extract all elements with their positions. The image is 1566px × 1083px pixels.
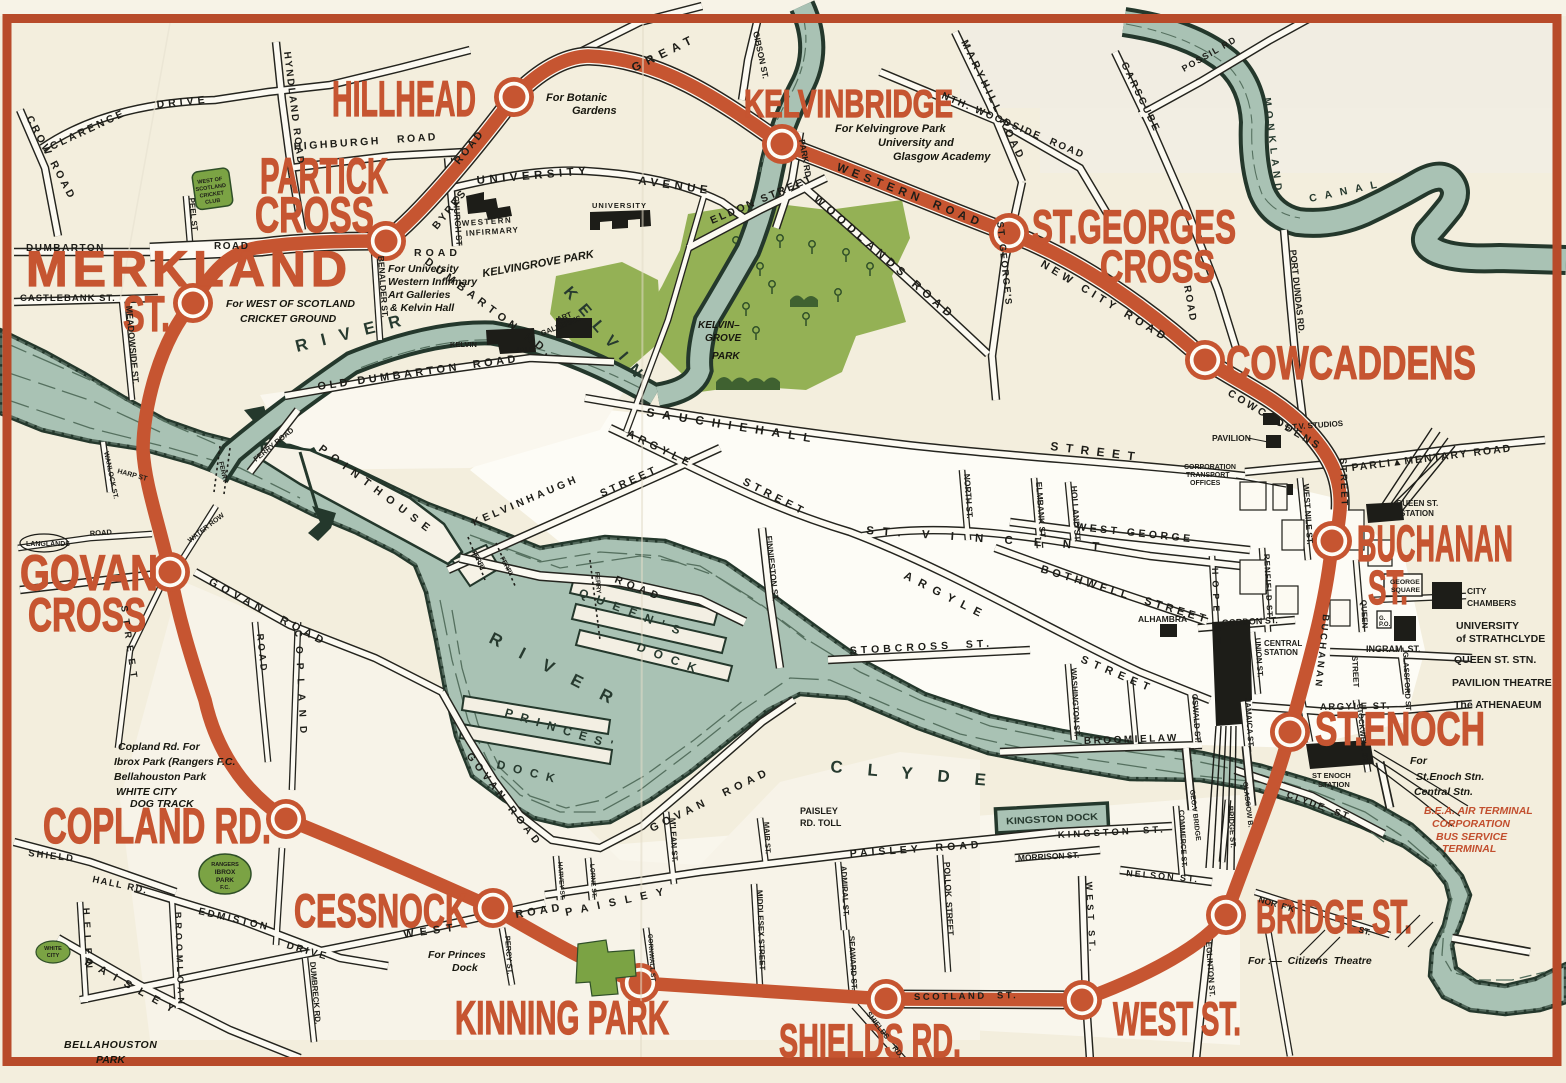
- svg-text:St.Enoch Stn.: St.Enoch Stn.: [1416, 771, 1484, 783]
- svg-text:University and: University and: [878, 137, 954, 149]
- svg-text:For University: For University: [388, 263, 460, 275]
- svg-text:Bellahouston Park: Bellahouston Park: [114, 771, 207, 783]
- svg-text:CROSS: CROSS: [255, 187, 374, 243]
- svg-text:ROAD: ROAD: [214, 241, 249, 252]
- svg-text:UNIVERSITY: UNIVERSITY: [592, 201, 647, 210]
- svg-text:WEST ST.: WEST ST.: [1113, 992, 1241, 1045]
- svg-text:Western Infirmary: Western Infirmary: [388, 276, 478, 288]
- svg-text:CASTLEBANK ST.: CASTLEBANK ST.: [20, 293, 116, 304]
- svg-text:KELVINBRIDGE: KELVINBRIDGE: [744, 83, 953, 126]
- svg-text:QUEEN: QUEEN: [1359, 600, 1369, 629]
- svg-text:For Princes: For Princes: [428, 949, 486, 961]
- svg-text:& Kelvin Hall: & Kelvin Hall: [390, 302, 455, 314]
- svg-text:PARK: PARK: [712, 351, 740, 362]
- svg-text:CITY: CITY: [1467, 586, 1487, 596]
- svg-text:DUMBARTON: DUMBARTON: [26, 243, 105, 254]
- svg-text:P.O.: P.O.: [1379, 622, 1391, 628]
- svg-text:F.C.: F.C.: [220, 885, 230, 891]
- svg-text:KINNING PARK: KINNING PARK: [455, 991, 669, 1044]
- svg-text:CITY: CITY: [47, 953, 60, 959]
- svg-text:PARK: PARK: [216, 877, 234, 884]
- svg-text:CORPORATION: CORPORATION: [1432, 818, 1510, 830]
- svg-text:Copland Rd. For: Copland Rd. For: [118, 741, 201, 753]
- svg-text:WHITE: WHITE: [44, 946, 62, 952]
- svg-text:PAISLEY: PAISLEY: [800, 806, 838, 816]
- svg-text:CHAMBERS: CHAMBERS: [1467, 598, 1516, 608]
- svg-text:SQUARE: SQUARE: [1391, 587, 1421, 594]
- svg-text:Gardens: Gardens: [572, 105, 617, 117]
- svg-text:B.E.A. AIR TERMINAL: B.E.A. AIR TERMINAL: [1424, 805, 1533, 817]
- svg-text:CENTRAL: CENTRAL: [1264, 639, 1302, 648]
- svg-text:ARGYLE ST.: ARGYLE ST.: [1320, 701, 1391, 713]
- svg-text:For WEST OF SCOTLAND: For WEST OF SCOTLAND: [226, 298, 355, 310]
- svg-text:WHITE CITY: WHITE CITY: [116, 786, 178, 798]
- svg-text:CORPORATION: CORPORATION: [1184, 464, 1236, 471]
- svg-text:CROSS: CROSS: [1100, 241, 1215, 292]
- svg-text:COWCADDENS: COWCADDENS: [1226, 336, 1476, 389]
- svg-text:ALHAMBRA: ALHAMBRA: [1138, 614, 1187, 624]
- svg-text:of STRATHCLYDE: of STRATHCLYDE: [1456, 633, 1545, 645]
- svg-text:BRIDGE ST.: BRIDGE ST.: [1256, 890, 1412, 943]
- svg-text:HALL: HALL: [514, 345, 534, 354]
- svg-text:For Botanic: For Botanic: [546, 92, 607, 104]
- svg-text:STREET: STREET: [1337, 458, 1350, 508]
- svg-text:For: For: [1410, 755, 1428, 767]
- svg-text:STREET: STREET: [1350, 656, 1361, 688]
- svg-text:TERMINAL: TERMINAL: [1442, 843, 1496, 855]
- svg-text:Central Stn.: Central Stn.: [1414, 786, 1473, 798]
- svg-text:The ATHENAEUM: The ATHENAEUM: [1454, 699, 1542, 711]
- svg-text:ROAD: ROAD: [90, 527, 113, 538]
- svg-text:TRANSPORT: TRANSPORT: [1186, 472, 1230, 479]
- svg-text:STATION: STATION: [1264, 648, 1298, 657]
- svg-text:QUEEN ST.: QUEEN ST.: [1396, 499, 1438, 508]
- svg-text:Art Galleries: Art Galleries: [387, 289, 451, 301]
- svg-text:STATION: STATION: [1400, 509, 1434, 518]
- svg-text:Glasgow Academy: Glasgow Academy: [893, 151, 991, 163]
- svg-text:SCOTLAND ST.: SCOTLAND ST.: [914, 990, 1018, 1003]
- svg-text:OFFICES: OFFICES: [1190, 480, 1221, 487]
- svg-text:BUS SERVICE: BUS SERVICE: [1436, 831, 1508, 843]
- svg-text:GEORGE: GEORGE: [1390, 579, 1420, 586]
- svg-text:BELLAHOUSTON: BELLAHOUSTON: [64, 1039, 157, 1051]
- svg-text:RANGERS: RANGERS: [211, 862, 239, 868]
- svg-text:ST ENOCH: ST ENOCH: [1312, 771, 1351, 780]
- svg-text:PARK: PARK: [96, 1054, 126, 1066]
- svg-text:KELVIN: KELVIN: [450, 340, 477, 349]
- svg-text:Dock: Dock: [452, 962, 479, 974]
- svg-text:QUEEN ST. STN.: QUEEN ST. STN.: [1454, 654, 1536, 666]
- svg-text:MAIR ST.: MAIR ST.: [762, 822, 773, 855]
- svg-text:PAVILION: PAVILION: [1212, 433, 1251, 443]
- svg-text:For :— Citizens Theatre: For :— Citizens Theatre: [1248, 955, 1372, 967]
- svg-text:PAVILION THEATRE: PAVILION THEATRE: [1452, 677, 1552, 689]
- svg-text:ROAD: ROAD: [414, 247, 461, 259]
- svg-text:GROVE: GROVE: [705, 333, 741, 344]
- svg-text:Ibrox Park (Rangers F.C.: Ibrox Park (Rangers F.C.: [114, 756, 235, 768]
- svg-text:KELVIN–: KELVIN–: [698, 320, 740, 331]
- svg-text:UNIVERSITY: UNIVERSITY: [1456, 620, 1519, 632]
- svg-text:LANGLANDS: LANGLANDS: [26, 541, 70, 548]
- svg-text:INGRAM ST.: INGRAM ST.: [1366, 644, 1421, 654]
- svg-text:STATION: STATION: [1318, 780, 1350, 789]
- svg-text:HILLHEAD: HILLHEAD: [332, 71, 476, 127]
- svg-text:RD. TOLL: RD. TOLL: [800, 818, 842, 828]
- svg-text:CRICKET GROUND: CRICKET GROUND: [240, 313, 337, 325]
- svg-text:For Kelvingrove Park: For Kelvingrove Park: [835, 123, 947, 135]
- svg-text:DOG TRACK: DOG TRACK: [130, 798, 195, 810]
- svg-text:IBROX: IBROX: [215, 869, 236, 876]
